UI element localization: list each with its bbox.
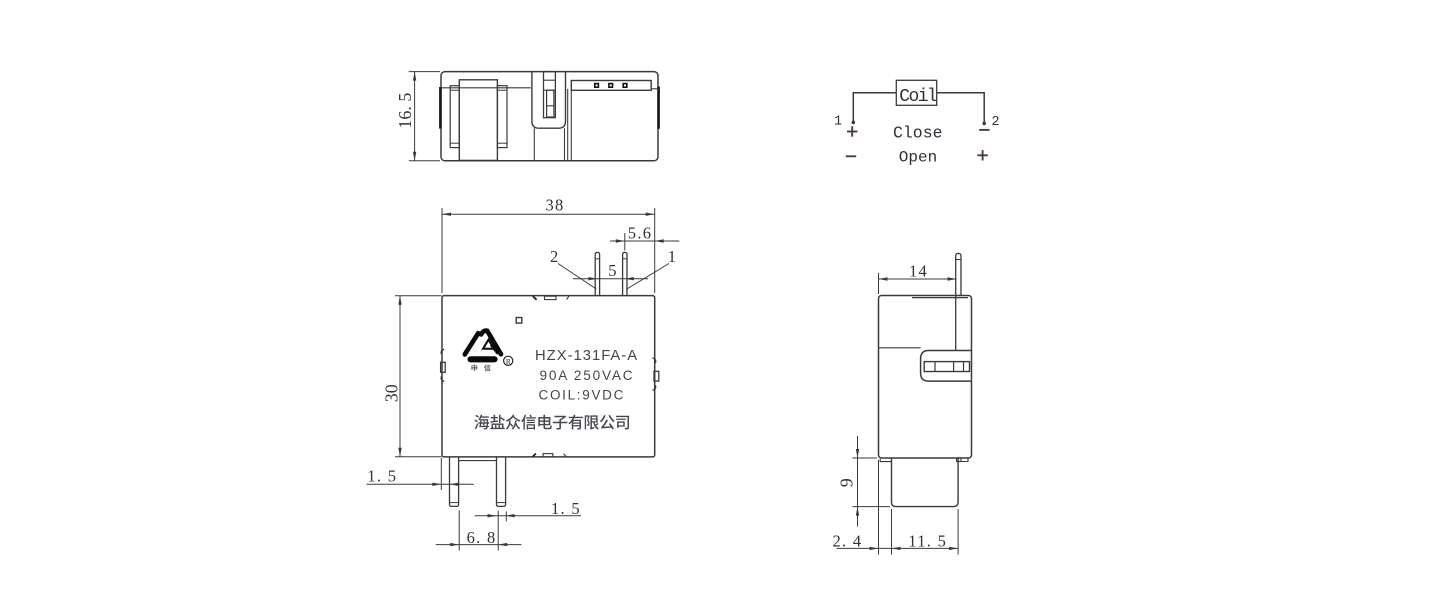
svg-text:R: R — [506, 357, 511, 366]
svg-text:11. 5: 11. 5 — [908, 531, 947, 550]
svg-text:5.6: 5.6 — [628, 224, 653, 243]
svg-text:14: 14 — [909, 261, 928, 280]
svg-text:2: 2 — [550, 247, 560, 266]
svg-text:COIL:9VDC: COIL:9VDC — [539, 388, 626, 403]
svg-text:1. 5: 1. 5 — [367, 467, 397, 486]
svg-text:30: 30 — [382, 384, 402, 402]
svg-text:16. 5: 16. 5 — [395, 93, 415, 129]
svg-text:9: 9 — [837, 478, 857, 487]
svg-text:HZX-131FA-A: HZX-131FA-A — [535, 348, 638, 364]
svg-text:1: 1 — [834, 115, 842, 130]
svg-text:6. 8: 6. 8 — [467, 528, 497, 547]
svg-text:1. 5: 1. 5 — [551, 499, 581, 518]
svg-text:Open: Open — [899, 148, 937, 166]
svg-text:1: 1 — [668, 247, 678, 266]
svg-text:5: 5 — [608, 261, 618, 280]
svg-text:2. 4: 2. 4 — [833, 531, 863, 550]
svg-text:Close: Close — [893, 124, 943, 143]
svg-text:90A 250VAC: 90A 250VAC — [540, 368, 635, 383]
svg-text:Coil: Coil — [899, 87, 937, 107]
svg-text:38: 38 — [546, 196, 565, 215]
svg-text:2: 2 — [992, 115, 1000, 130]
